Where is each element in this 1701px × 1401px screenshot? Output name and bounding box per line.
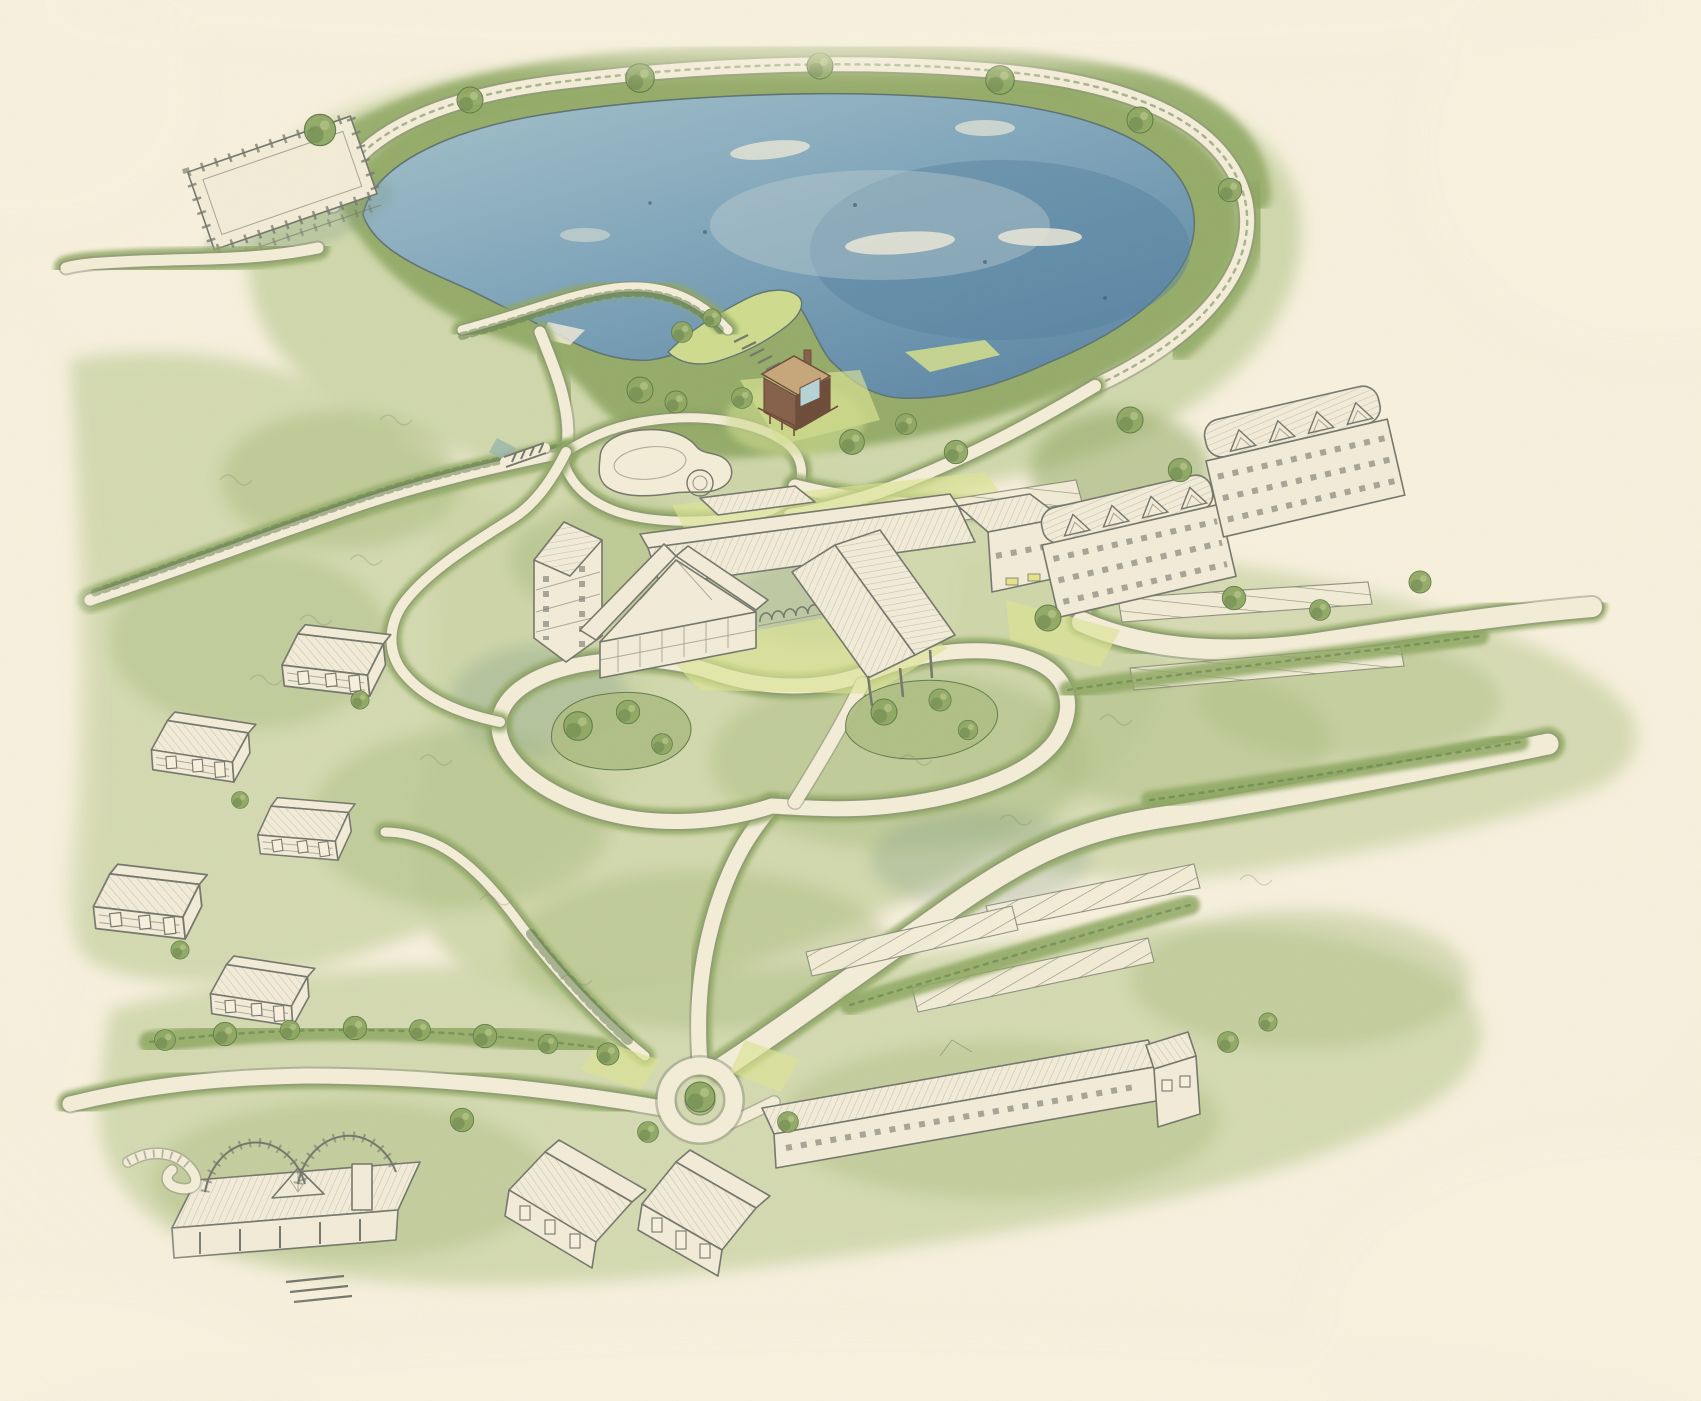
site-plan-page — [0, 0, 1701, 1401]
paper-grain — [0, 0, 1701, 1401]
site-plan-illustration — [0, 0, 1701, 1401]
